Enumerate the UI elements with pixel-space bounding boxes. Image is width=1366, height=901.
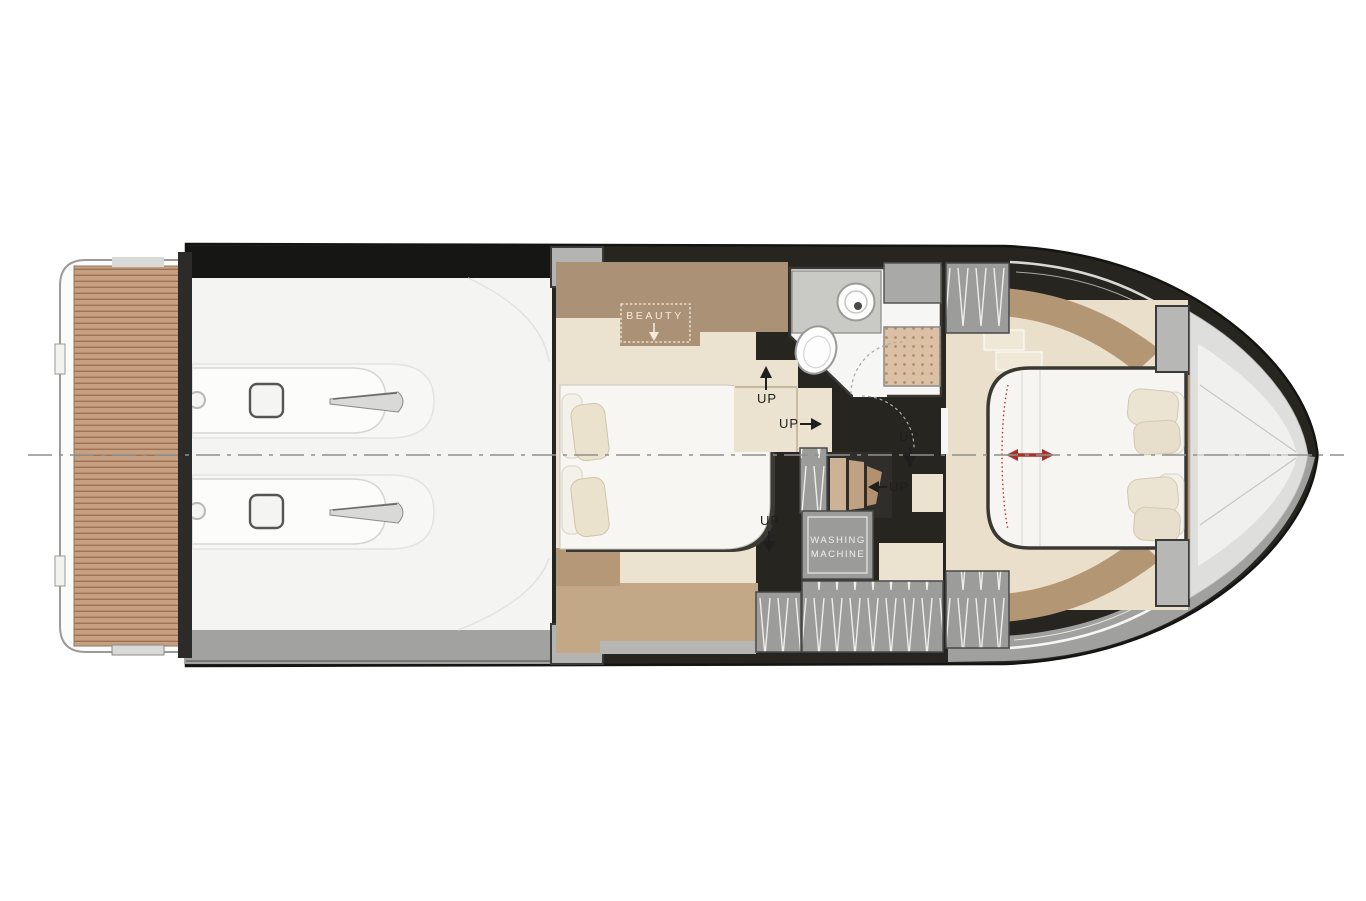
cleat-bottom (112, 645, 164, 655)
hanging-locker (756, 592, 801, 652)
cabin-door-opening (941, 408, 948, 454)
pillow (570, 402, 611, 462)
washing-machine: WASHING MACHINE (802, 511, 873, 579)
washing-machine-label-line2: MACHINE (811, 549, 865, 560)
hanging-locker (946, 263, 1009, 333)
shower-tray (884, 327, 940, 386)
gunwale-bottom-left (184, 630, 556, 664)
gunwale-top-left (186, 246, 556, 280)
up-label: UP (889, 479, 909, 494)
companionway-landing-step (798, 388, 832, 452)
platform-latch-upper (55, 344, 65, 374)
platform-latch-lower (55, 556, 65, 586)
hanging-locker (802, 581, 943, 652)
sink-drain (854, 302, 862, 310)
engine-room-floor (192, 278, 552, 630)
engine-starboard (189, 475, 434, 549)
cleat-top (112, 257, 164, 267)
engine-port (189, 364, 434, 438)
yacht-floor-plan: BEAUTY (0, 0, 1366, 901)
mid-cabin: BEAUTY (556, 262, 788, 654)
mid-cabin-aft-step (600, 641, 756, 654)
bathroom-door-opening (853, 390, 887, 397)
sink-basin (838, 284, 875, 321)
floor-plan-canvas: BEAUTY (0, 0, 1366, 901)
stair-step (849, 460, 864, 510)
mid-cabin-side-locker (556, 548, 620, 586)
stair-step (830, 458, 846, 512)
corridor-floor-patch (912, 474, 943, 512)
beauty-label: BEAUTY (626, 310, 684, 322)
hanging-locker (800, 448, 827, 513)
pillar-bottom (1156, 540, 1189, 606)
swim-platform (55, 257, 188, 655)
up-label: UP (757, 391, 777, 406)
pillow (570, 476, 611, 538)
up-label: UP (760, 513, 780, 528)
pillow (1133, 419, 1181, 455)
hanging-locker (946, 571, 1009, 648)
up-label: UP (779, 416, 799, 431)
pillar-top (1156, 306, 1189, 372)
washing-machine-label-line1: WASHING (810, 535, 866, 546)
teak-decking (74, 266, 182, 646)
corridor-floor-patch (879, 543, 943, 583)
pillow (1133, 506, 1181, 542)
up-label: UP (899, 429, 919, 444)
bathroom-cabinet (884, 263, 941, 303)
